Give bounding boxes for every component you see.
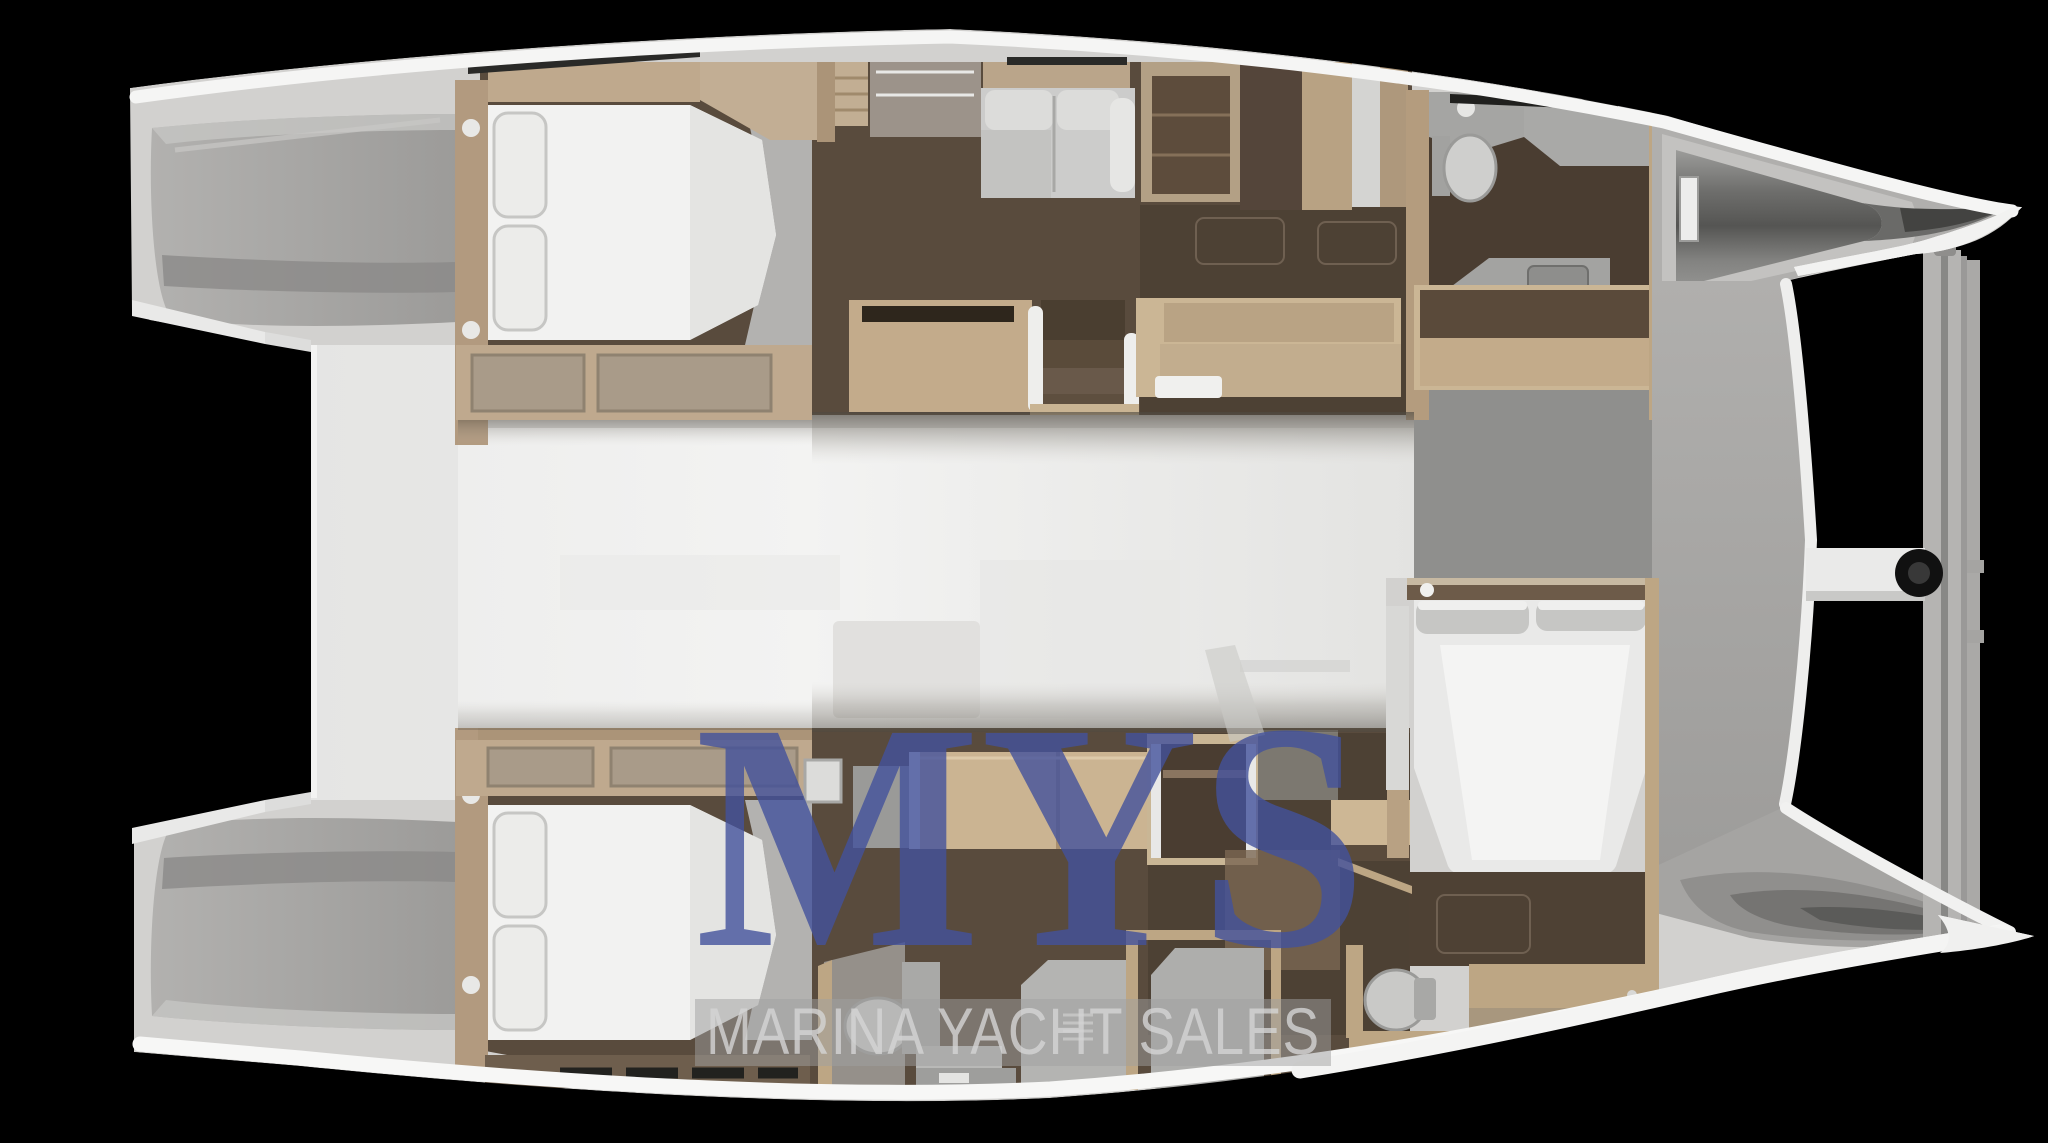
- svg-text:MYS: MYS: [695, 657, 1367, 1016]
